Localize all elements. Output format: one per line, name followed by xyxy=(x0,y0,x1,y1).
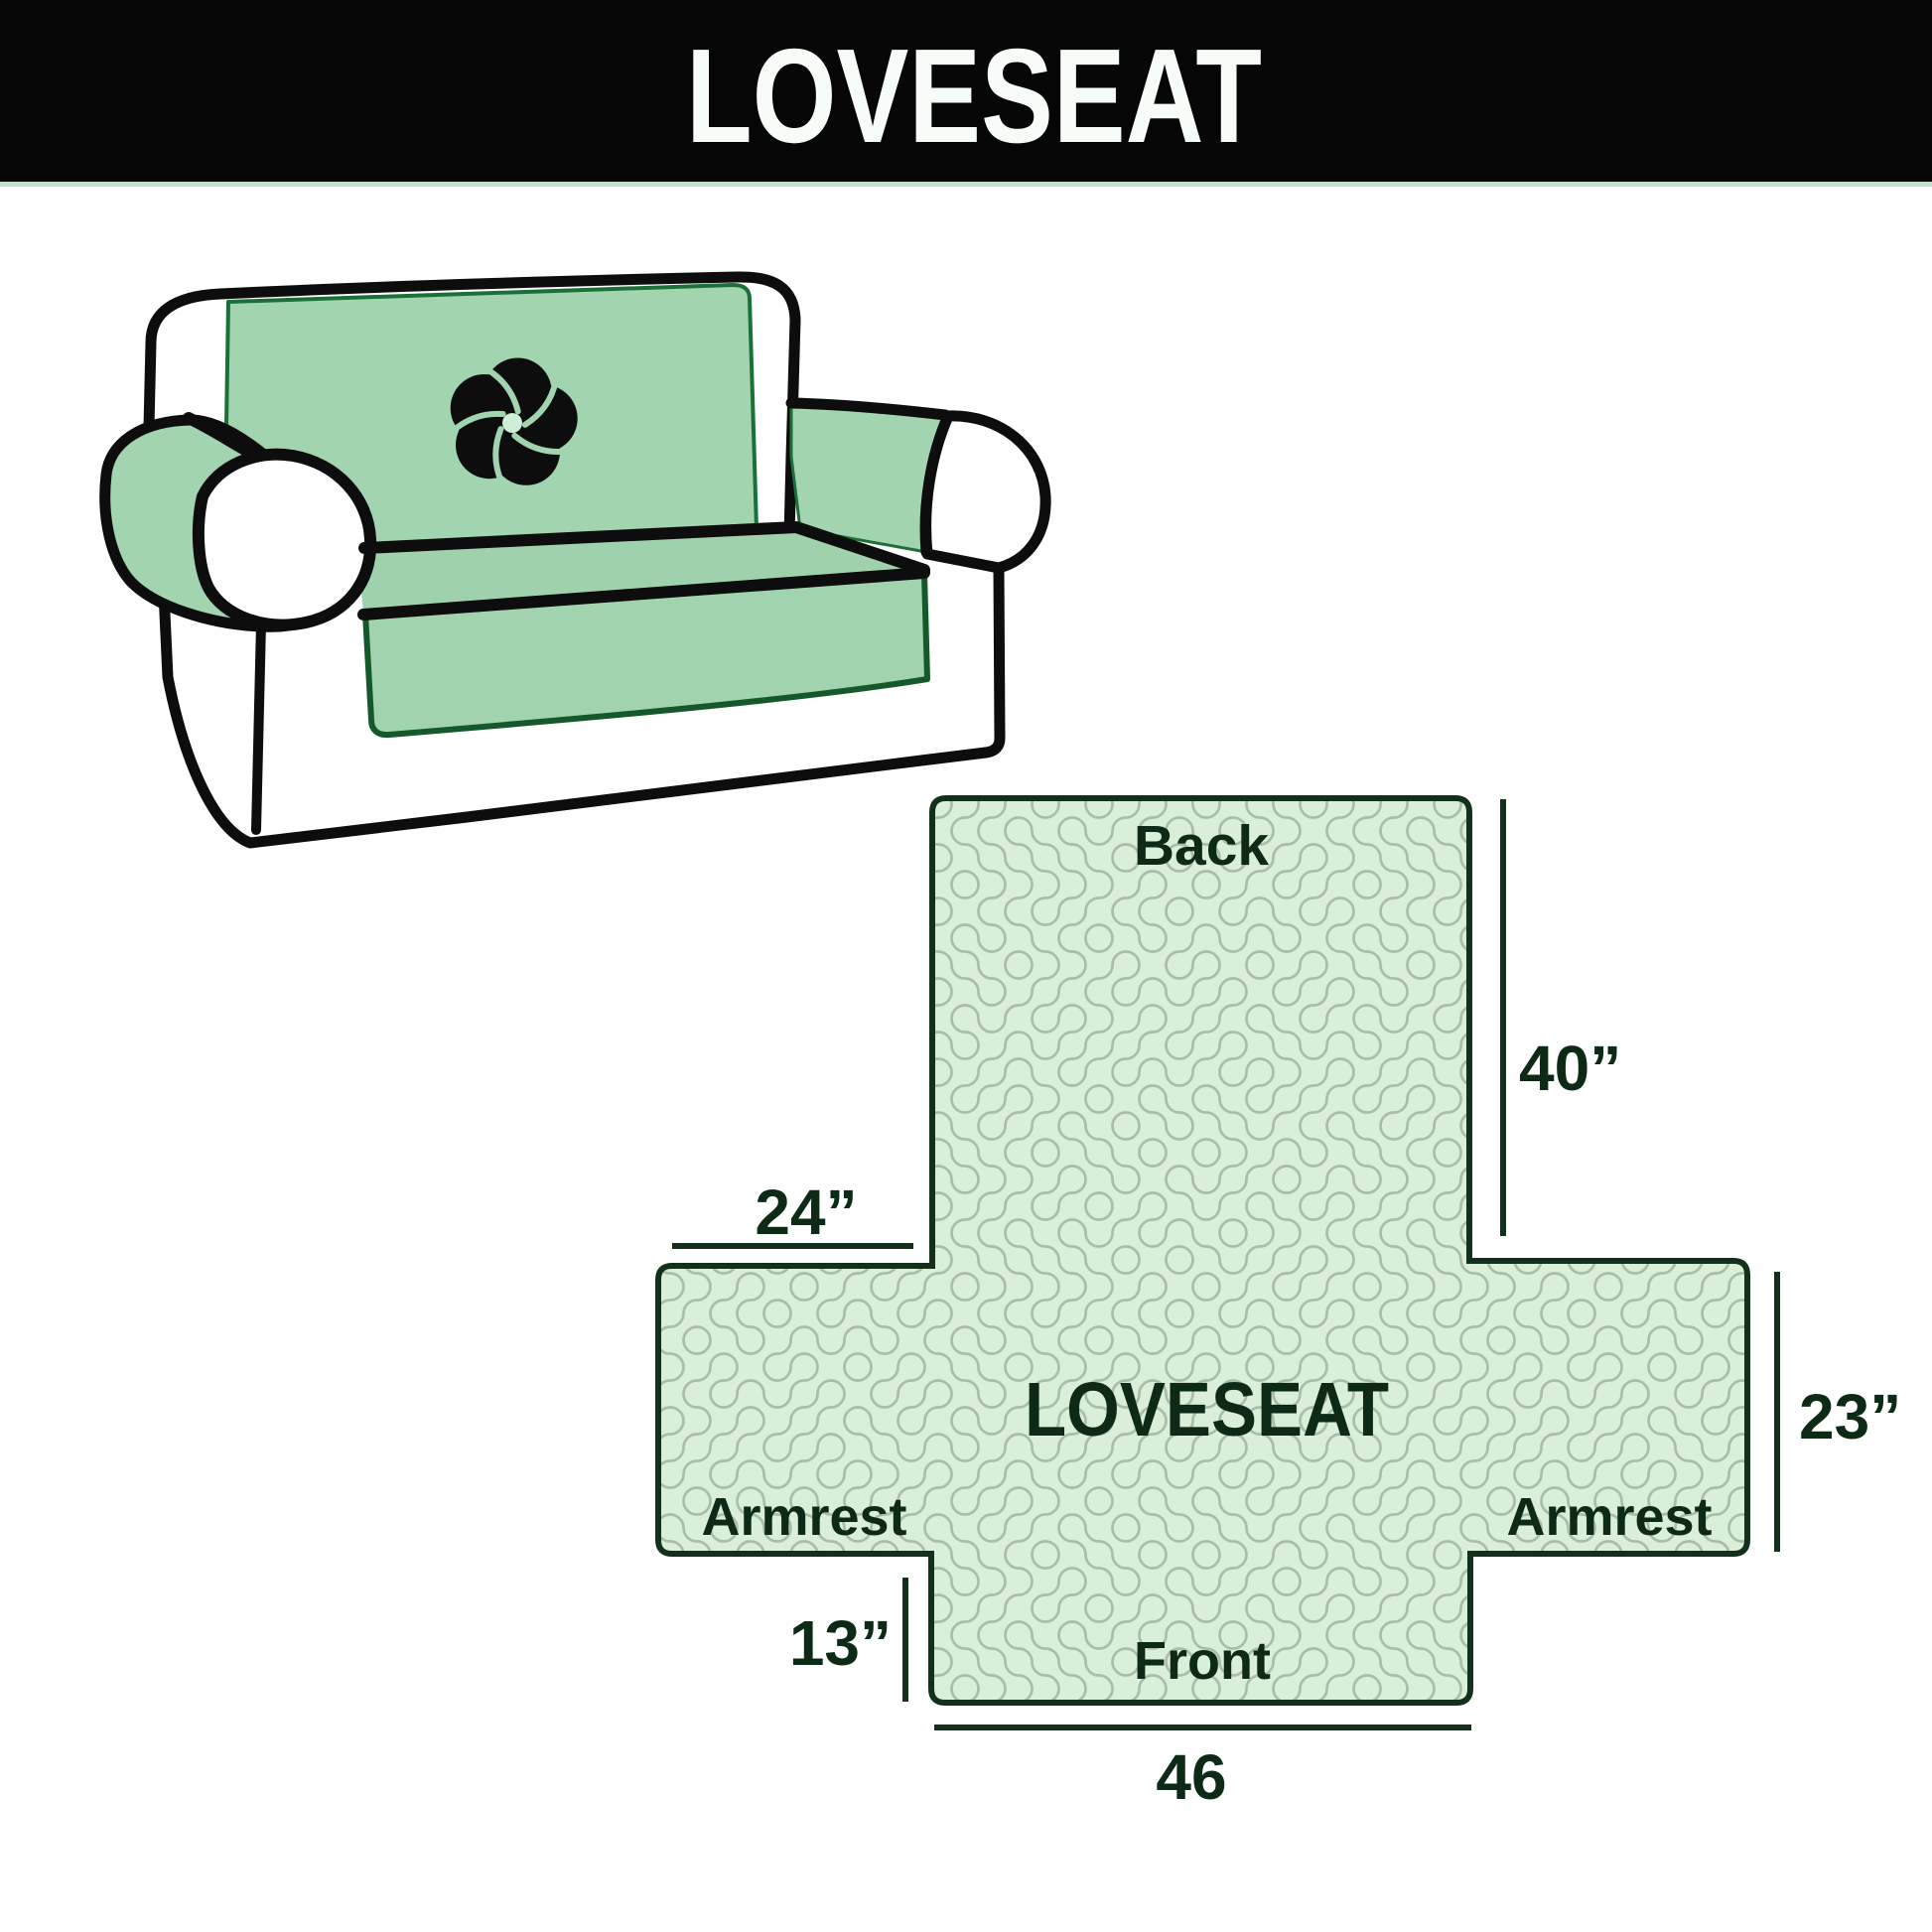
svg-text:13”: 13” xyxy=(789,1607,892,1679)
svg-text:46: 46 xyxy=(1156,1741,1226,1813)
svg-text:Back: Back xyxy=(1134,814,1270,878)
svg-text:LOVESEAT: LOVESEAT xyxy=(686,21,1262,171)
svg-text:Front: Front xyxy=(1134,1631,1271,1691)
svg-text:Armrest: Armrest xyxy=(1506,1487,1712,1547)
svg-text:LOVESEAT: LOVESEAT xyxy=(1025,1367,1389,1452)
svg-text:24”: 24” xyxy=(755,1176,857,1248)
svg-text:40”: 40” xyxy=(1519,1033,1621,1104)
svg-text:23”: 23” xyxy=(1799,1381,1901,1452)
svg-text:Armrest: Armrest xyxy=(701,1487,906,1547)
